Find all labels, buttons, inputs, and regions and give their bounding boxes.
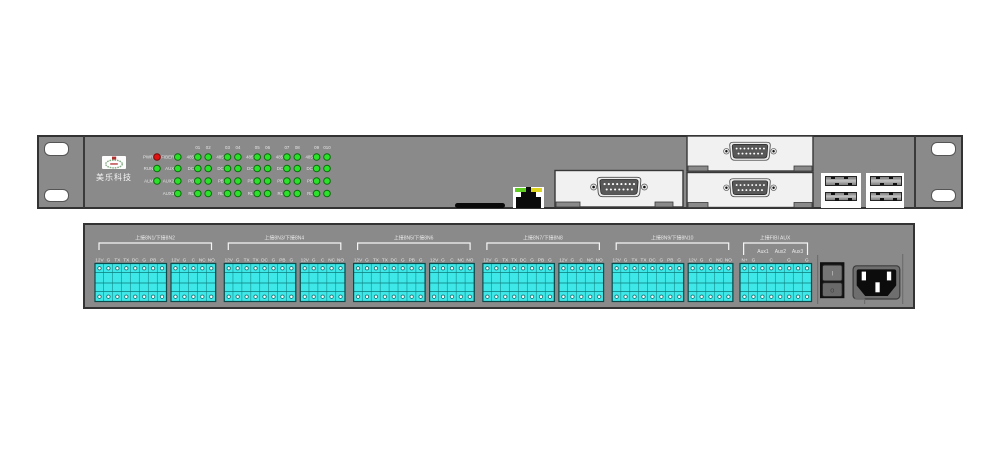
svg-text:G: G — [787, 257, 791, 262]
svg-text:DC: DC — [261, 257, 268, 262]
svg-text:PB: PB — [667, 257, 673, 262]
svg-text:DC: DC — [649, 257, 656, 262]
svg-text:G: G — [419, 257, 423, 262]
svg-text:TX: TX — [382, 257, 389, 262]
svg-text:TX: TX — [244, 257, 251, 262]
svg-text:NO: NO — [337, 257, 344, 262]
svg-text:G: G — [272, 257, 276, 262]
svg-text:G: G — [548, 257, 552, 262]
svg-text:G: G — [401, 257, 405, 262]
svg-text:NC: NC — [328, 257, 335, 262]
svg-text:C: C — [321, 257, 325, 262]
svg-text:NC: NC — [457, 257, 464, 262]
svg-text:DC: DC — [520, 257, 527, 262]
svg-text:G: G — [160, 257, 164, 262]
svg-text:G: G — [107, 257, 111, 262]
svg-text:上接8N3/下接8N4: 上接8N3/下接8N4 — [264, 235, 304, 242]
svg-text:Aux3: Aux3 — [792, 249, 804, 255]
svg-text:12V: 12V — [688, 257, 697, 262]
svg-text:12V: 12V — [483, 257, 492, 262]
svg-text:12V: 12V — [301, 257, 310, 262]
svg-text:PB: PB — [409, 257, 415, 262]
svg-text:12V: 12V — [225, 257, 234, 262]
svg-text:G: G — [290, 257, 294, 262]
svg-text:TX: TX — [123, 257, 130, 262]
svg-text:PB: PB — [538, 257, 544, 262]
svg-text:G: G — [677, 257, 681, 262]
svg-text:TX: TX — [632, 257, 639, 262]
svg-text:NC: NC — [587, 257, 594, 262]
svg-text:G: G — [142, 257, 146, 262]
svg-text:12V: 12V — [171, 257, 180, 262]
svg-text:NC: NC — [716, 257, 723, 262]
svg-text:C: C — [450, 257, 454, 262]
svg-text:G: G — [441, 257, 445, 262]
svg-text:TX: TX — [502, 257, 509, 262]
svg-text:TX: TX — [114, 257, 121, 262]
svg-text:G: G — [752, 257, 756, 262]
svg-text:上接8N5/下接8N6: 上接8N5/下接8N6 — [394, 235, 434, 242]
svg-text:TX: TX — [511, 257, 518, 262]
svg-text:上接8N1/下接8N2: 上接8N1/下接8N2 — [135, 235, 175, 242]
svg-text:C: C — [770, 257, 774, 262]
svg-text:NO: NO — [466, 257, 473, 262]
svg-text:DC: DC — [132, 257, 139, 262]
svg-text:DC: DC — [390, 257, 397, 262]
svg-text:N+: N+ — [741, 257, 747, 262]
svg-text:G: G — [624, 257, 628, 262]
svg-text:G: G — [236, 257, 240, 262]
svg-text:12V: 12V — [95, 257, 104, 262]
svg-text:G: G — [530, 257, 534, 262]
svg-text:NO: NO — [208, 257, 215, 262]
svg-text:G: G — [312, 257, 316, 262]
svg-text:TX: TX — [640, 257, 647, 262]
svg-text:TX: TX — [373, 257, 380, 262]
svg-text:O: O — [830, 289, 834, 295]
svg-text:G: G — [570, 257, 574, 262]
svg-text:G: G — [700, 257, 704, 262]
svg-text:PB: PB — [279, 257, 285, 262]
svg-text:NO: NO — [725, 257, 732, 262]
svg-text:Aux2: Aux2 — [775, 249, 787, 255]
svg-text:G: G — [494, 257, 498, 262]
svg-text:12V: 12V — [559, 257, 568, 262]
svg-text:G: G — [805, 257, 809, 262]
svg-text:上接8N7/下接8N8: 上接8N7/下接8N8 — [523, 235, 563, 242]
svg-text:上接FIBI AUX: 上接FIBI AUX — [760, 235, 791, 242]
svg-text:Aux1: Aux1 — [757, 249, 769, 255]
svg-text:NC: NC — [199, 257, 206, 262]
svg-text:TX: TX — [253, 257, 260, 262]
svg-text:G: G — [183, 257, 187, 262]
svg-text:PB: PB — [150, 257, 156, 262]
svg-text:上接8N9/下接8N10: 上接8N9/下接8N10 — [651, 235, 694, 242]
svg-text:12V: 12V — [430, 257, 439, 262]
svg-text:G: G — [365, 257, 369, 262]
svg-text:12V: 12V — [354, 257, 363, 262]
svg-text:NO: NO — [596, 257, 603, 262]
svg-text:G: G — [660, 257, 664, 262]
svg-text:12V: 12V — [612, 257, 621, 262]
